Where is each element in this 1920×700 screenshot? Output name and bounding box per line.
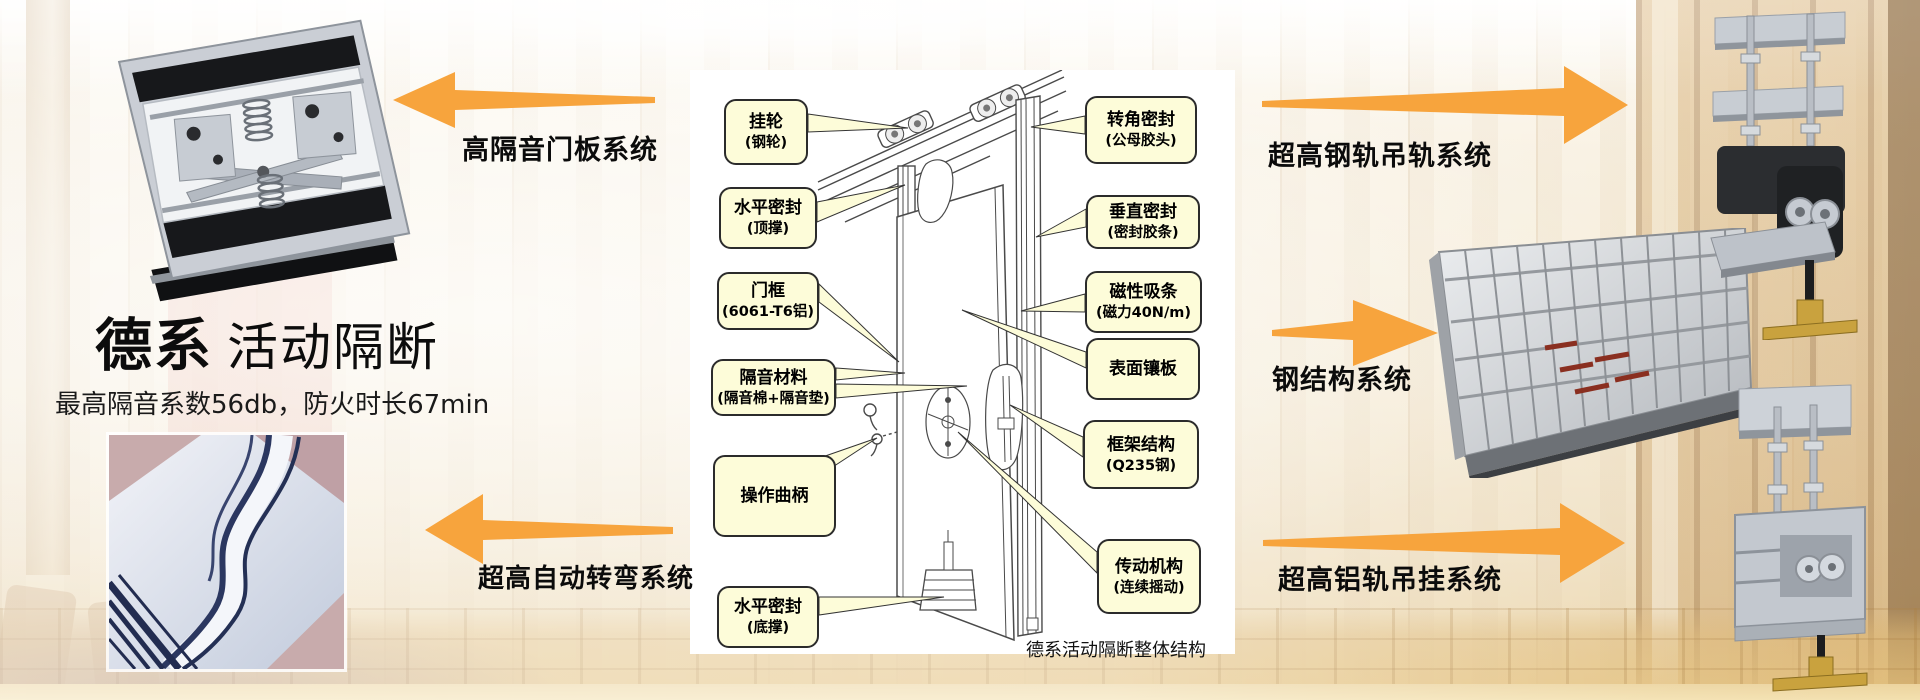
leader-acoustic-material-1 xyxy=(836,368,905,380)
curved-track-illustration xyxy=(109,435,344,669)
callout-magnetic-strip: 磁性吸条 (磁力40N/m) xyxy=(1085,271,1202,333)
label-auto-turn-system: 超高自动转弯系统 xyxy=(478,558,694,595)
photo-curved-track xyxy=(106,432,347,672)
callout-crank: 操作曲柄 xyxy=(713,455,836,537)
slide: 德系活动隔断 最高隔音系数56db，防火时长67min xyxy=(0,0,1920,700)
callout-surface-panel: 表面镶板 xyxy=(1086,338,1200,400)
photo-alu-rail-hardware xyxy=(1725,383,1875,695)
arrow-steel-rail-system xyxy=(1262,66,1628,144)
subtitle-specs: 最高隔音系数56db，防火时长67min xyxy=(55,384,489,421)
leader-top-seal xyxy=(817,185,905,222)
callout-door-frame: 门框 (6061-T6铝) xyxy=(717,272,819,330)
callout-top-seal: 水平密封 (顶撑) xyxy=(719,187,817,249)
arrow-door-panel-system xyxy=(393,72,655,128)
alu-rail-hardware-illustration xyxy=(1725,383,1875,695)
page-title: 德系活动隔断 xyxy=(95,300,439,382)
steel-rail-hardware-illustration xyxy=(1705,10,1865,340)
title-product: 活动隔断 xyxy=(227,319,439,378)
title-brand: 德系 xyxy=(95,313,213,379)
callout-corner-seal: 转角密封 (公母胶头) xyxy=(1085,96,1197,164)
label-steel-structure-system: 钢结构系统 xyxy=(1272,358,1412,397)
callout-vertical-seal: 垂直密封 (密封胶条) xyxy=(1086,195,1200,249)
leader-door-frame xyxy=(819,284,899,362)
callout-hanging-wheel: 挂轮 (钢轮) xyxy=(724,99,808,165)
photo-steel-rail-hardware xyxy=(1705,10,1865,340)
arrow-auto-turn-system xyxy=(425,494,673,564)
leader-vertical-seal xyxy=(1036,209,1086,237)
callout-drive-mechanism: 传动机构 (连续摇动) xyxy=(1097,539,1201,614)
label-alu-rail-system: 超高铝轨吊挂系统 xyxy=(1278,558,1502,597)
diagram-panel: 挂轮 (钢轮) 水平密封 (顶撑) 门框 (6061-T6铝) 隔音材料 (隔音… xyxy=(690,70,1235,654)
diagram-caption: 德系活动隔断整体结构 xyxy=(1018,636,1214,662)
label-steel-rail-system: 超高钢轨吊轨系统 xyxy=(1268,134,1492,173)
callout-bottom-seal: 水平密封 (底撑) xyxy=(717,586,819,648)
label-door-panel-system: 高隔音门板系统 xyxy=(462,128,658,167)
door-top-mechanism-illustration xyxy=(100,8,422,303)
crank-drawing xyxy=(864,404,897,456)
callout-acoustic-material: 隔音材料 (隔音棉+隔音垫) xyxy=(711,359,836,416)
photo-door-top-mechanism xyxy=(100,8,422,303)
callout-frame-structure: 框架结构 (Q235钢) xyxy=(1083,420,1199,489)
